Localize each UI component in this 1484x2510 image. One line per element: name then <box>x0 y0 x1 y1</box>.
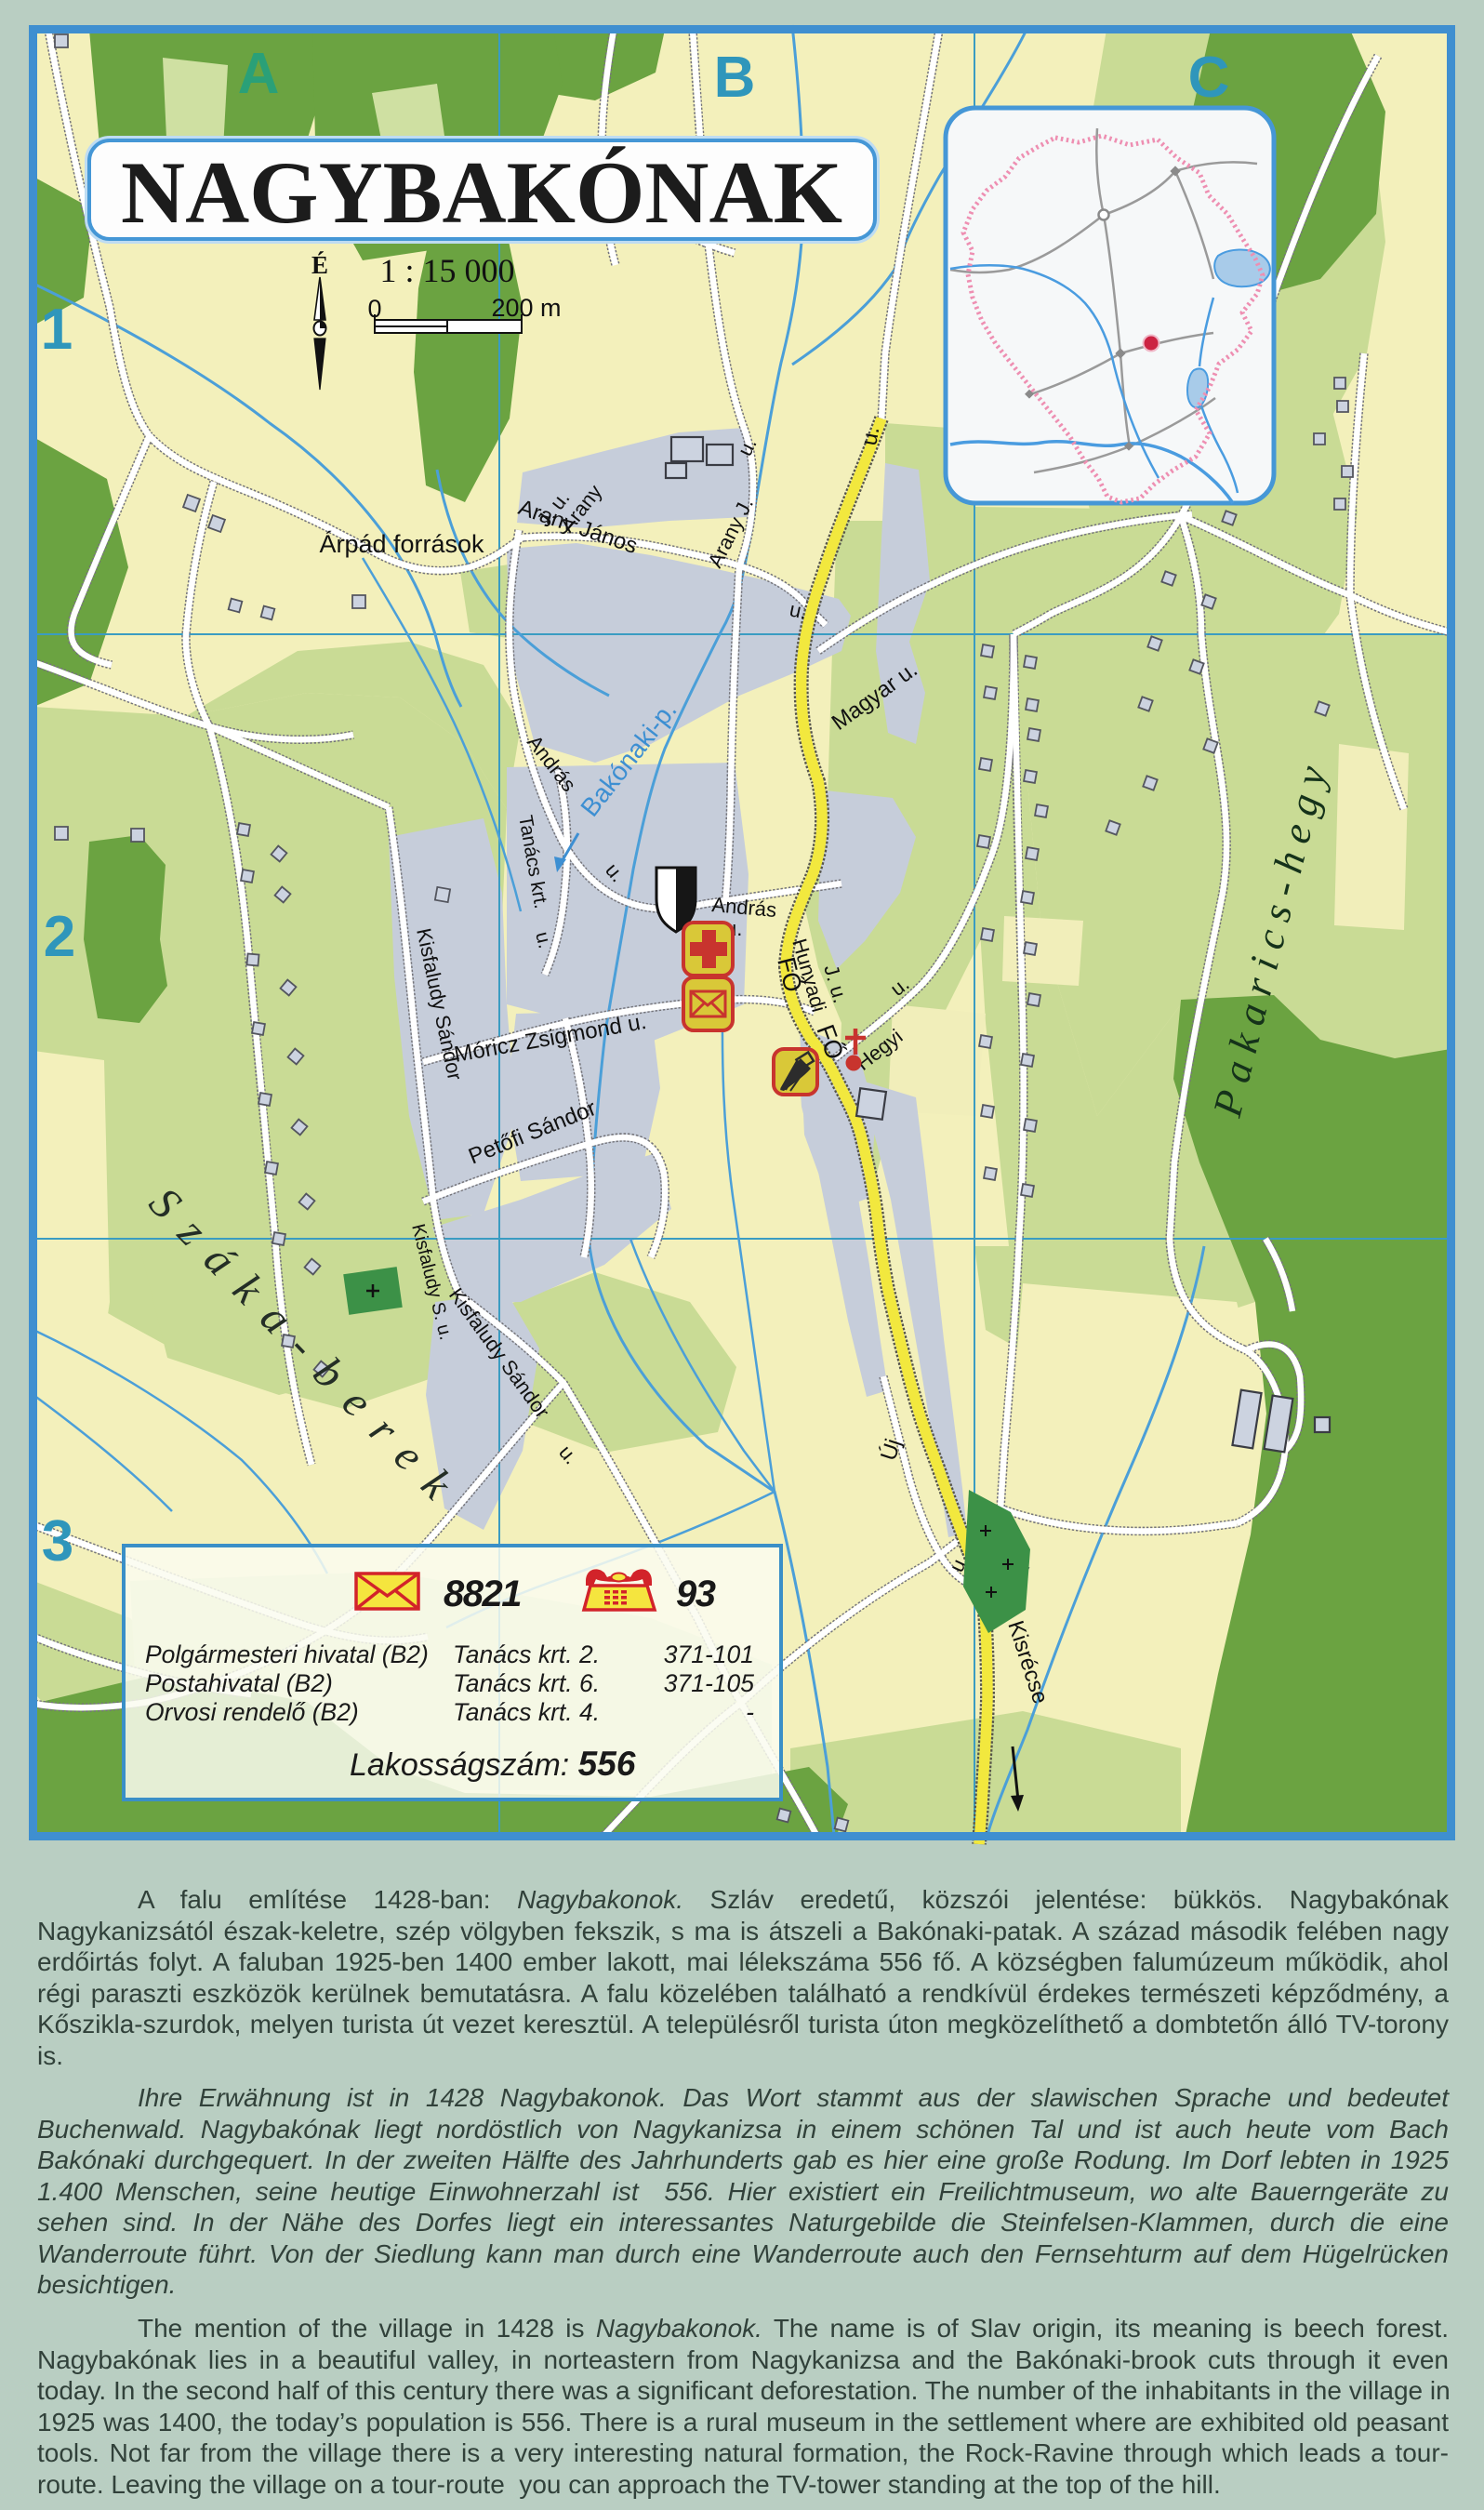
svg-text:-: - <box>746 1698 754 1726</box>
svg-text:Tanács krt. 4.: Tanács krt. 4. <box>453 1698 600 1726</box>
svg-text:B: B <box>714 46 756 110</box>
svg-text:Postahivatal (B2): Postahivatal (B2) <box>145 1669 333 1697</box>
svg-text:Lakosságszám: 556: Lakosságszám: 556 <box>350 1745 636 1783</box>
svg-text:Árpád források: Árpád források <box>319 530 484 558</box>
svg-text:É: É <box>311 251 328 279</box>
svg-text:2: 2 <box>44 905 75 969</box>
svg-text:200 m: 200 m <box>491 294 561 322</box>
svg-text:A: A <box>238 42 280 106</box>
svg-text:Tanács krt. 2.: Tanács krt. 2. <box>453 1640 600 1668</box>
svg-text:Orvosi rendelő (B2): Orvosi rendelő (B2) <box>145 1698 359 1726</box>
svg-text:8821: 8821 <box>444 1574 521 1614</box>
svg-text:1 : 15 000: 1 : 15 000 <box>379 252 514 289</box>
svg-text:3: 3 <box>42 1509 73 1574</box>
svg-text:371-101: 371-101 <box>664 1640 754 1668</box>
svg-text:Polgármesteri hivatal (B2): Polgármesteri hivatal (B2) <box>145 1640 429 1668</box>
svg-text:Tanács krt. 6.: Tanács krt. 6. <box>453 1669 600 1697</box>
svg-text:371-105: 371-105 <box>664 1669 755 1697</box>
svg-text:NAGYBAKÓNAK: NAGYBAKÓNAK <box>121 143 842 242</box>
svg-text:93: 93 <box>676 1574 716 1614</box>
svg-text:1: 1 <box>41 298 73 362</box>
svg-text:C: C <box>1188 46 1230 110</box>
